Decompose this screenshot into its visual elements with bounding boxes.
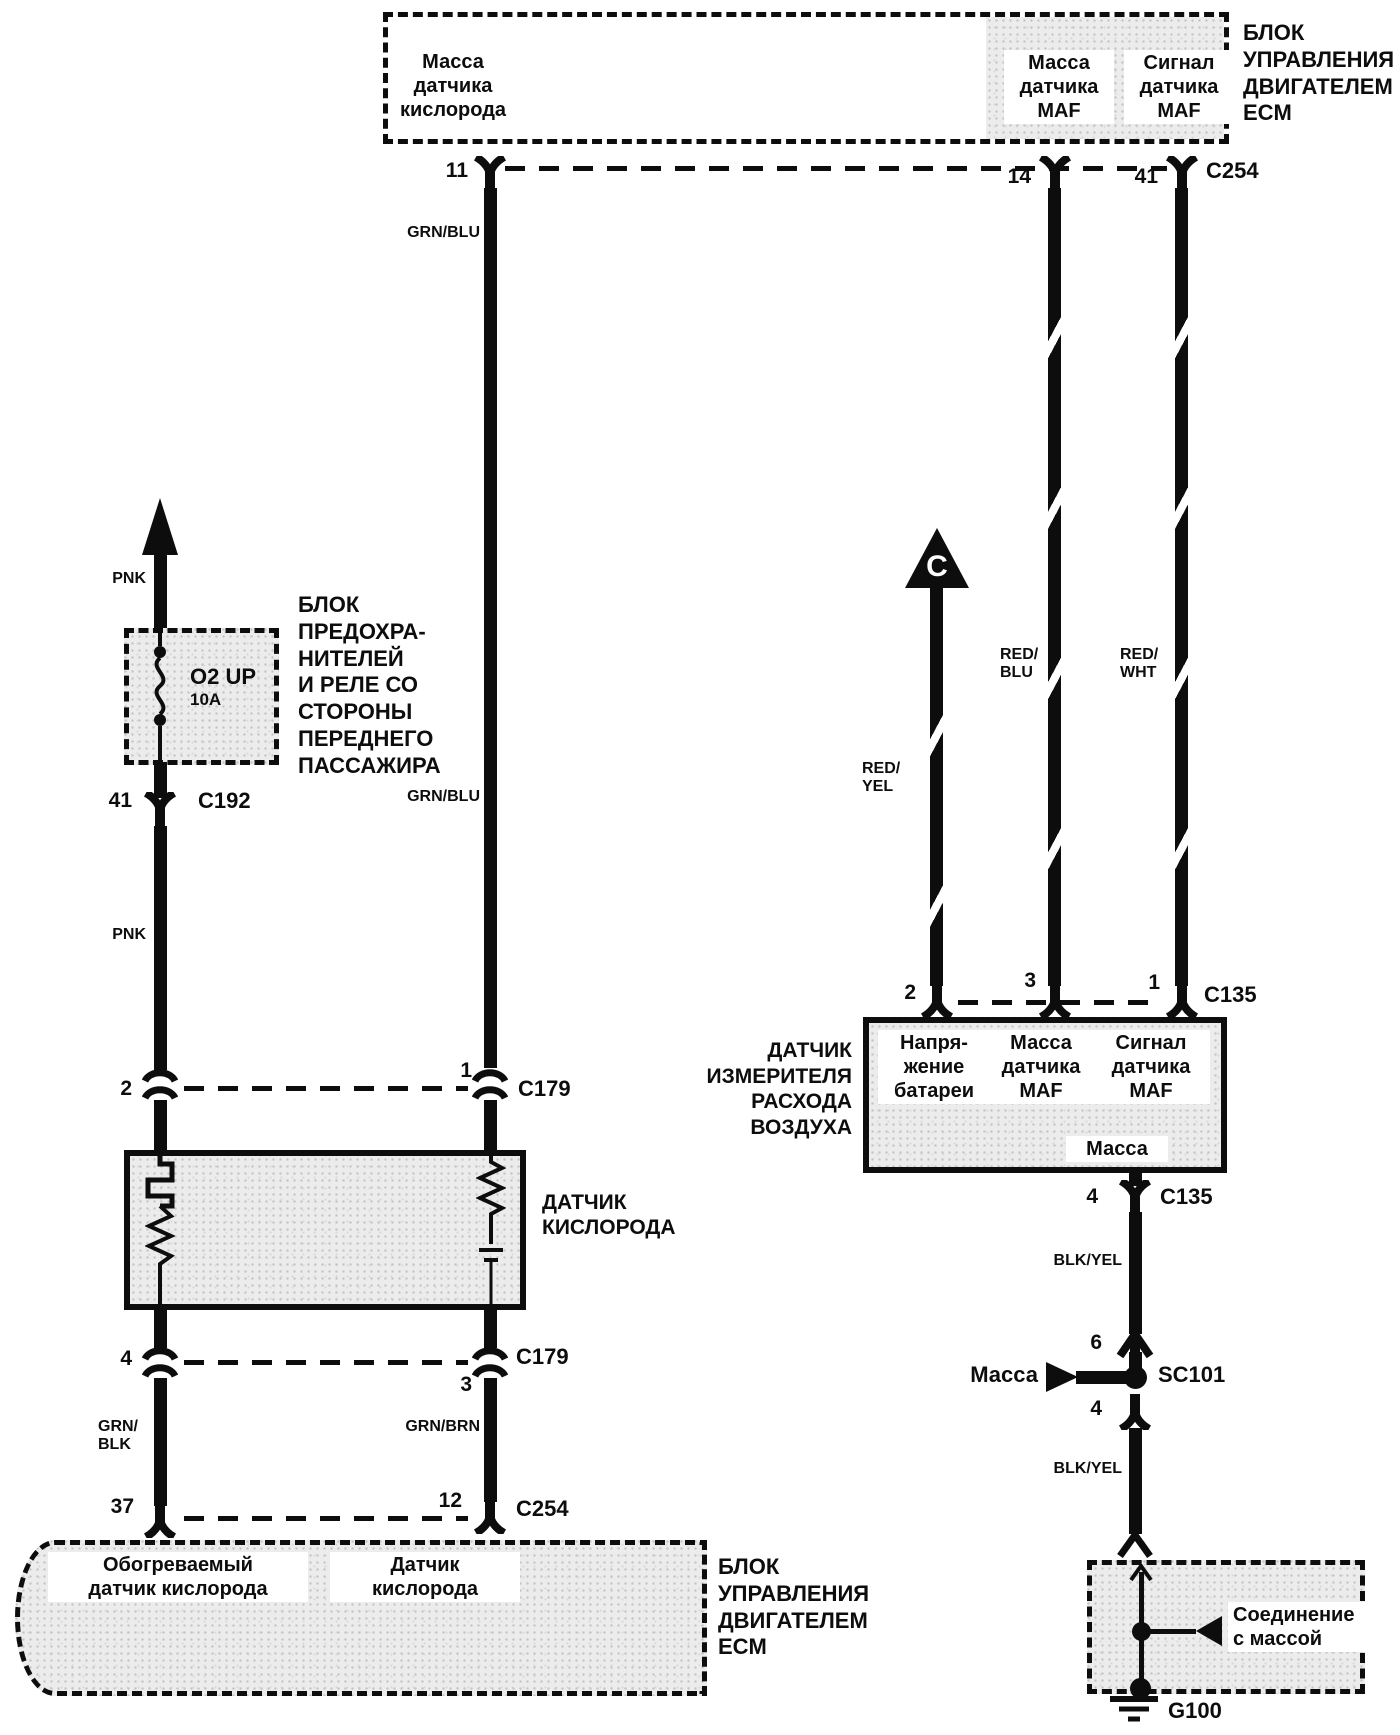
c179-lower-dashed-line [184, 1360, 468, 1365]
pin-3-c179: 3 [444, 1372, 472, 1397]
inline-connector-icon [472, 1066, 508, 1102]
ground-symbol-icon [1108, 1696, 1160, 1724]
g100-horizontal-line [1144, 1629, 1196, 1634]
connector-c179-upper: C179 [518, 1076, 604, 1102]
connector-pin-icon [142, 792, 178, 828]
connector-pin-icon [1117, 1180, 1153, 1216]
wire-red-blu [1048, 188, 1061, 986]
wire-pnk-lower [154, 826, 167, 1070]
pin-4-sc101: 4 [1074, 1396, 1102, 1421]
connector-pin-icon [1164, 156, 1200, 192]
connector-pin-icon [472, 156, 508, 192]
maf-battery-label: Напря- жение батареи [878, 1030, 990, 1104]
splice-ground-label: Масса [948, 1362, 1038, 1388]
wire-label-red-yel: RED/ YEL [862, 760, 922, 797]
wire-label-grn-blk: GRN/ BLK [98, 1418, 150, 1455]
offpage-arrow-up-icon [136, 498, 184, 556]
top-ecm-name: БЛОК УПРАВЛЕНИЯ ДВИГАТЕЛЕМ ECM [1243, 20, 1399, 127]
pin-12-c254: 12 [426, 1488, 462, 1513]
wire-blk-yel-lower [1129, 1428, 1142, 1534]
wiring-diagram: Масса датчика кислорода Масса датчика MA… [0, 0, 1400, 1735]
wire-blk-yel-upper [1129, 1212, 1142, 1334]
pin-11: 11 [428, 158, 468, 183]
wire-grn-blu [484, 188, 497, 1068]
pin-2-c135: 2 [886, 980, 916, 1005]
connector-c135-top: C135 [1204, 982, 1290, 1008]
connector-pin-icon [1117, 1394, 1153, 1430]
pin-2-c179: 2 [96, 1076, 132, 1101]
wire-label-blk-yel-2: BLK/YEL [1040, 1460, 1122, 1478]
connector-pin-icon [1164, 982, 1200, 1018]
pin-4-c179: 4 [94, 1346, 132, 1371]
o2-sensor-name: ДАТЧИК КИСЛОРОДА [542, 1190, 702, 1240]
sensor-cell-icon [476, 1156, 506, 1304]
wire-grn-brn-upper [484, 1306, 497, 1348]
top-ecm-maf-ground-label: Масса датчика MAF [1004, 50, 1114, 124]
wire-to-o2-left [154, 1100, 167, 1156]
pin-3-c135: 3 [1006, 968, 1036, 993]
inline-connector-icon [142, 1344, 178, 1380]
pin-14: 14 [985, 164, 1031, 189]
heater-element-icon [145, 1156, 175, 1304]
wire-red-wht [1175, 188, 1188, 986]
bottom-ecm-heated-o2-label: Обогреваемый датчик кислорода [48, 1552, 308, 1602]
connector-pin-icon [142, 1502, 178, 1538]
connector-pin-icon [472, 1498, 508, 1534]
ground-pointer-right-icon [1044, 1360, 1080, 1394]
pin-6-sc101: 6 [1074, 1330, 1102, 1355]
ground-id: G100 [1168, 1698, 1258, 1724]
wire-label-grn-blu-1: GRN/BLU [388, 224, 480, 242]
wire-label-pnk-2: PNK [96, 926, 146, 944]
wire-label-red-wht: RED/ WHT [1120, 646, 1180, 683]
inline-connector-icon [142, 1066, 178, 1102]
bottom-ecm-o2-label: Датчик кислорода [330, 1552, 520, 1602]
c254-lower-dashed-line [184, 1516, 468, 1521]
wire-end-chevron-icon [1115, 1532, 1155, 1558]
splice-dot [1124, 1366, 1147, 1389]
connector-pin-icon [919, 982, 955, 1018]
bottom-ecm-name: БЛОК УПРАВЛЕНИЯ ДВИГАТЕЛЕМ ECM [718, 1554, 898, 1661]
ground-pointer-left-icon [1194, 1614, 1224, 1648]
c179-upper-dashed-line [184, 1086, 468, 1091]
pin-41-c192: 41 [88, 788, 132, 813]
pin-41-c254: 41 [1114, 164, 1158, 189]
splice-ground-bar [1076, 1371, 1130, 1384]
pin-37-c254: 37 [92, 1494, 134, 1519]
inline-connector-icon [472, 1344, 508, 1380]
wire-to-o2-right [484, 1100, 497, 1156]
wire-label-grn-blu-2: GRN/BLU [388, 788, 480, 806]
connector-c179-lower: C179 [516, 1344, 602, 1370]
connector-c254-lower: C254 [516, 1496, 602, 1522]
wire-label-pnk-1: PNK [96, 570, 146, 588]
wire-label-grn-brn: GRN/BRN [386, 1418, 480, 1436]
connector-c135-bottom: C135 [1160, 1184, 1246, 1210]
wire-grn-blk-upper [154, 1306, 167, 1348]
fuse-rating: 10A [190, 690, 250, 710]
fuse-name: O2 UP [190, 664, 276, 690]
top-ecm-maf-signal-label: Сигнал датчика MAF [1124, 50, 1234, 124]
wire-red-yel [930, 586, 943, 986]
c135-dashed-line [958, 1000, 1162, 1005]
connector-c192: C192 [198, 788, 284, 814]
maf-case-ground-label: Масса [1066, 1136, 1168, 1162]
pin-4-c135: 4 [1068, 1184, 1098, 1209]
connector-pin-icon [1037, 156, 1073, 192]
maf-ground-label: Масса датчика MAF [986, 1030, 1096, 1104]
offpage-ref-letter: C [905, 550, 969, 584]
wire-label-blk-yel-1: BLK/YEL [1044, 1252, 1122, 1270]
wire-pnk-upper [154, 552, 167, 630]
pin-1-c179: 1 [438, 1058, 472, 1083]
maf-sensor-name: ДАТЧИК ИЗМЕРИТЕЛЯ РАСХОДА ВОЗДУХА [688, 1038, 852, 1140]
top-ecm-o2-ground-label: Масса датчика кислорода [388, 50, 518, 122]
o2-sensor-box [124, 1150, 526, 1310]
fuse-icon [146, 630, 174, 763]
g100-connection-label: Соединение с массой [1228, 1602, 1372, 1652]
wire-label-red-blu: RED/ BLU [1000, 646, 1058, 683]
wire-grn-blk-lower [154, 1378, 167, 1506]
fuse-panel-name: БЛОК ПРЕДОХРА- НИТЕЛЕЙ И РЕЛЕ СО СТОРОНЫ… [298, 592, 508, 780]
connector-c254-top: C254 [1206, 158, 1296, 184]
maf-signal-label: Сигнал датчика MAF [1092, 1030, 1210, 1104]
pin-1-c135: 1 [1134, 970, 1160, 995]
splice-id: SC101 [1158, 1362, 1258, 1388]
wire-grn-brn-lower [484, 1378, 497, 1502]
